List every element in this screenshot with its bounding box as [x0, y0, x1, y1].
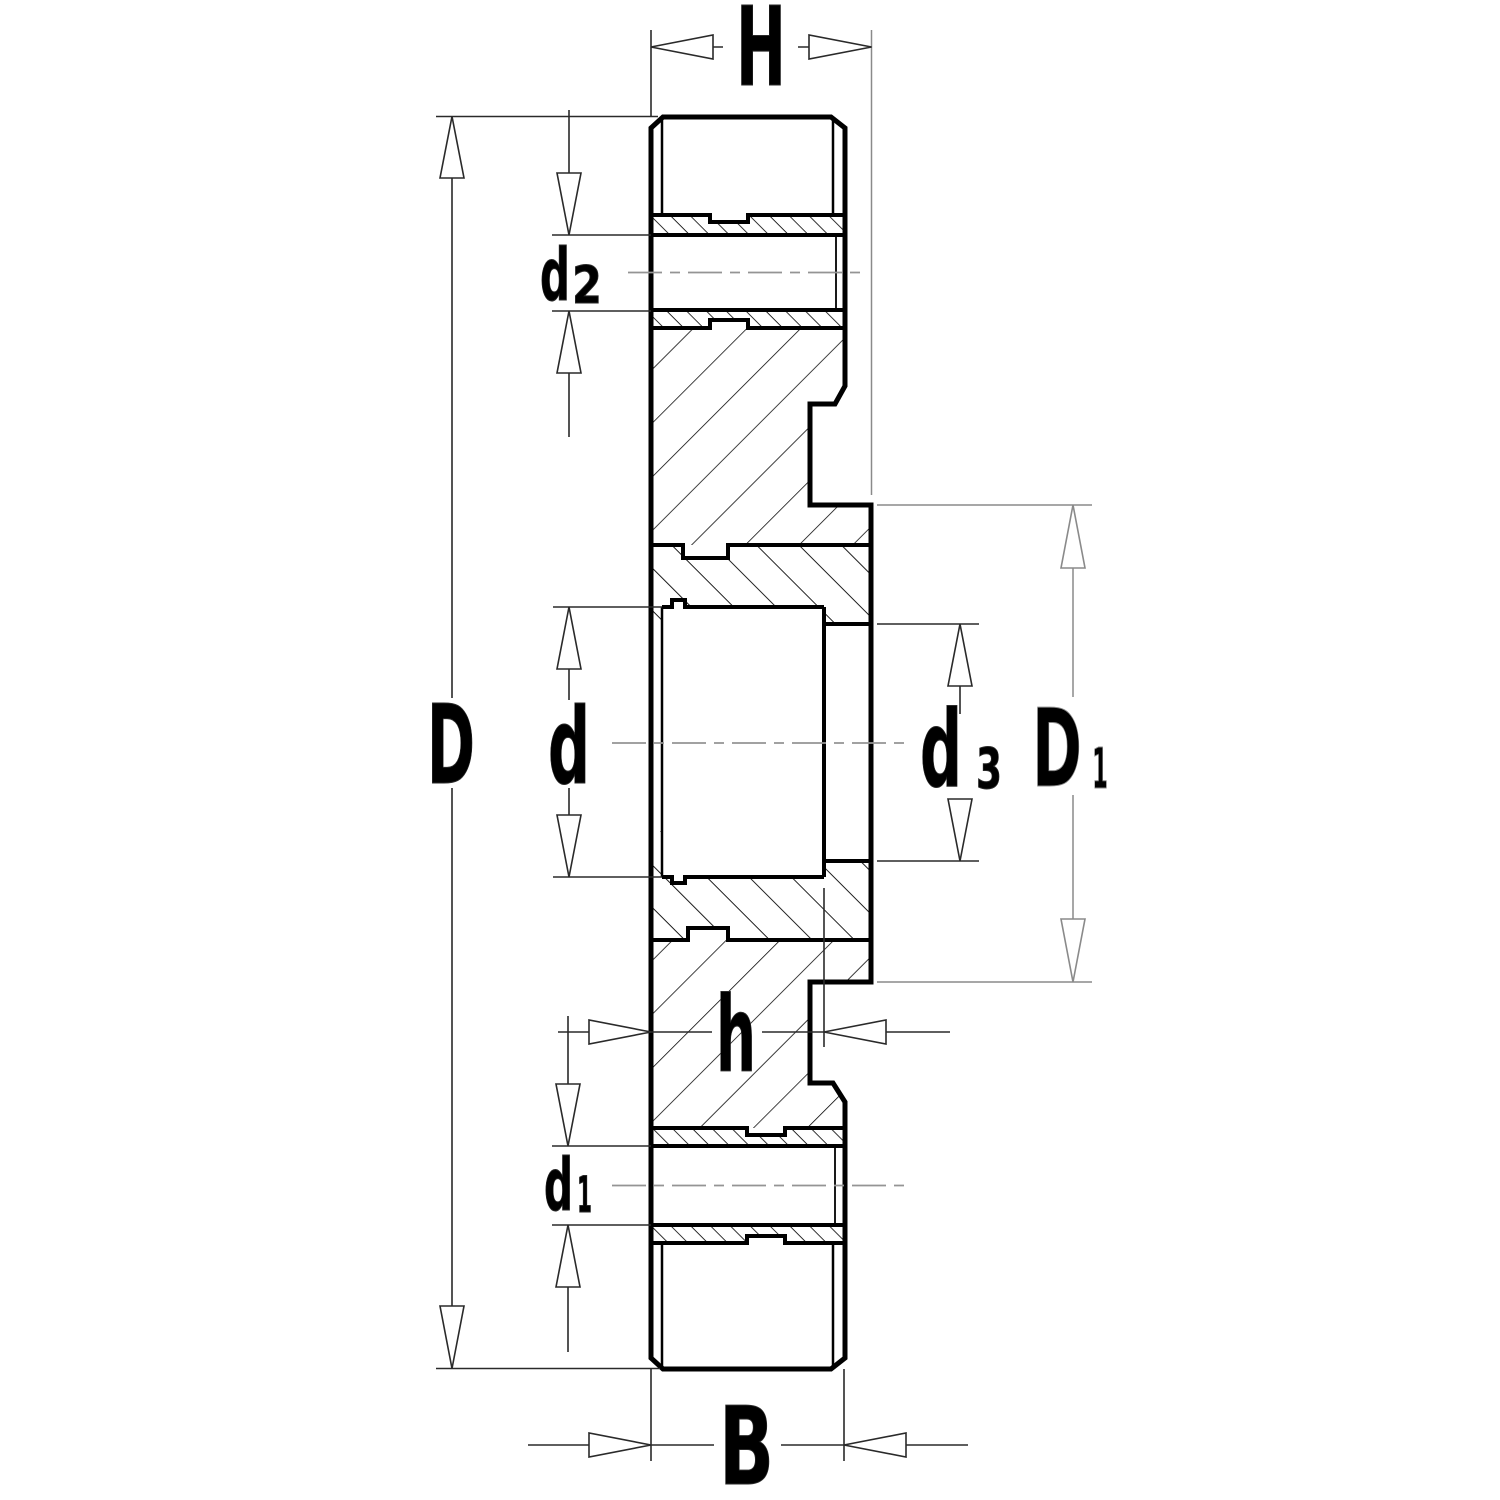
dim-label-d2-subscript: 2 — [572, 256, 602, 316]
dim-label-d: d — [548, 686, 590, 808]
dimension-d1: d 1 — [544, 1016, 651, 1352]
dimension-B: B — [528, 1369, 968, 1500]
dim-label-d2: d — [540, 233, 570, 317]
arrowhead-icon — [557, 607, 581, 669]
hatch-upper-web — [651, 328, 871, 545]
arrowhead-icon — [844, 1433, 906, 1457]
arrowhead-icon — [557, 311, 581, 373]
arrowhead-icon — [556, 1225, 580, 1287]
hatch-lower-hub-wall — [651, 861, 871, 940]
arrowhead-icon — [1061, 505, 1085, 568]
arrowhead-icon — [556, 1084, 580, 1146]
arrowhead-icon — [809, 35, 872, 59]
arrowhead-icon — [1061, 919, 1085, 982]
arrowhead-icon — [948, 624, 972, 686]
dim-label-D: D — [427, 681, 475, 809]
dim-label-d1: d — [544, 1143, 573, 1227]
arrowhead-icon — [824, 1020, 886, 1044]
technical-drawing-page: H D d d 2 d 3 D 1 — [0, 0, 1500, 1500]
arrowhead-icon — [440, 1306, 464, 1369]
arrowhead-icon — [557, 815, 581, 877]
dim-label-H: H — [736, 0, 786, 111]
dim-label-D1-subscript: 1 — [1092, 737, 1108, 802]
dim-label-B: B — [719, 1385, 774, 1500]
arrowhead-icon — [651, 35, 713, 59]
arrowhead-icon — [589, 1433, 651, 1457]
dim-label-d3-subscript: 3 — [976, 737, 1002, 802]
dim-label-d3: d — [920, 688, 962, 811]
dim-label-D1: D — [1032, 687, 1082, 812]
dim-label-d1-subscript: 1 — [577, 1166, 592, 1224]
arrowhead-icon — [440, 117, 464, 179]
flange-section-drawing: H D d d 2 d 3 D 1 — [0, 0, 1500, 1500]
arrowhead-icon — [557, 173, 581, 235]
arrowhead-icon — [589, 1020, 651, 1044]
dim-label-h: h — [716, 974, 756, 1096]
dimension-d: d — [548, 607, 662, 877]
dimension-d2: d 2 — [540, 110, 651, 437]
